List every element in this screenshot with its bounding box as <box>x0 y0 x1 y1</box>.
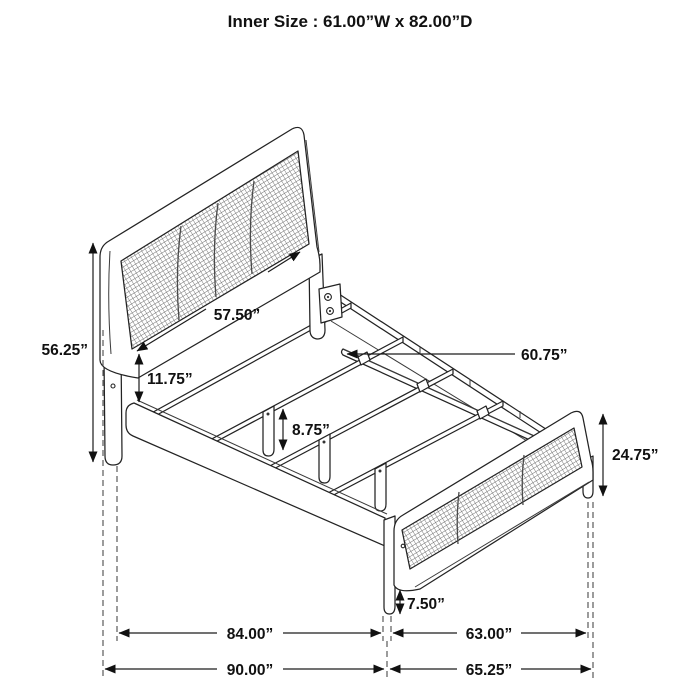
dimension-footboard-span: 63.00” <box>393 626 586 643</box>
dimension-label-footboard-span: 63.00” <box>466 626 513 643</box>
dimension-overall-width: 65.25” <box>390 662 591 679</box>
footboard-left-leg <box>384 516 395 614</box>
dimension-footboard-height: 24.75” <box>603 414 659 496</box>
dimension-label-headboard-panel-width: 57.50” <box>214 307 261 324</box>
dimension-siderail-span: 84.00” <box>119 626 381 643</box>
dimension-label-panel-to-rail-gap: 11.75” <box>147 371 193 388</box>
mounting-bracket <box>319 284 342 323</box>
dimension-label-siderail-span: 84.00” <box>227 626 274 643</box>
dimension-label-footboard-leg-height: 7.50” <box>407 596 445 613</box>
dimension-overall-length: 90.00” <box>105 662 384 679</box>
near-side-rail <box>126 400 387 546</box>
dimension-label-overall-length: 90.00” <box>227 662 274 679</box>
dimension-label-footboard-height: 24.75” <box>612 447 659 464</box>
dimension-label-overall-width: 65.25” <box>466 662 513 679</box>
bed-dimension-diagram: Inner Size : 61.00”W x 82.00”D <box>0 0 700 700</box>
dimension-label-support-leg-height: 8.75” <box>292 422 330 439</box>
dimension-headboard-height: 56.25” <box>41 243 93 462</box>
dimension-footboard-leg-height: 7.50” <box>400 590 445 614</box>
footboard <box>384 411 593 614</box>
diagram-canvas: Inner Size : 61.00”W x 82.00”D <box>0 0 700 700</box>
diagram-title: Inner Size : 61.00”W x 82.00”D <box>228 12 473 31</box>
dimension-label-headboard-height: 56.25” <box>41 342 88 359</box>
dimension-label-center-rail-length: 60.75” <box>521 347 568 364</box>
